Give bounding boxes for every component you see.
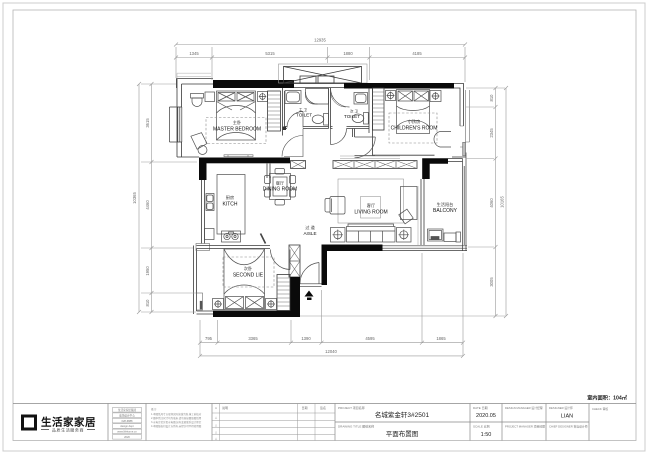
svg-text:客厅: 客厅: [367, 202, 375, 209]
svg-text:LIAN: LIAN: [561, 414, 573, 420]
svg-text:4.本图版权归设计方所有,未经许可不得转用图: 4.本图版权归设计方所有,未经许可不得转用图: [151, 424, 202, 428]
svg-text:TOILET: TOILET: [296, 113, 312, 118]
svg-text:PROJECT 项目名称: PROJECT 项目名称: [338, 405, 365, 410]
svg-text:1:50: 1:50: [481, 432, 492, 438]
svg-text:室内面积：104㎡: 室内面积：104㎡: [587, 394, 628, 402]
svg-text:10165: 10165: [500, 196, 505, 208]
svg-text:1950: 1950: [145, 266, 150, 276]
svg-text:DRAWING TITLE 图纸名称: DRAWING TITLE 图纸名称: [338, 424, 374, 429]
svg-text:1390: 1390: [301, 336, 311, 341]
svg-text:SECOND LIE: SECOND LIE: [233, 273, 264, 279]
svg-text:10365: 10365: [132, 192, 137, 204]
svg-text:日期: 日期: [301, 405, 307, 410]
svg-text:MASTER BEDROOM: MASTER BEDROOM: [213, 127, 261, 133]
svg-text:1345: 1345: [189, 51, 199, 56]
svg-text:PROJECT MANAGER 项目经理: PROJECT MANAGER 项目经理: [505, 425, 545, 429]
svg-text:5315: 5315: [265, 51, 275, 56]
svg-text:名城紫金轩3#2501: 名城紫金轩3#2501: [375, 410, 430, 419]
svg-text:备注:: 备注:: [151, 407, 157, 411]
svg-text:12935: 12935: [314, 38, 326, 43]
svg-text:3615: 3615: [145, 118, 150, 128]
svg-text:design dept: design dept: [120, 424, 134, 428]
svg-text:LIVING ROOM: LIVING ROOM: [354, 210, 387, 216]
svg-text:说明: 说明: [222, 405, 228, 410]
svg-text:028-6888: 028-6888: [122, 419, 134, 423]
svg-text:DESIGNER 设计师: DESIGNER 设计师: [549, 406, 573, 410]
svg-text:795: 795: [205, 336, 213, 341]
svg-text:TOILET: TOILET: [344, 114, 360, 119]
svg-text:3005: 3005: [489, 277, 494, 287]
svg-text:2020.05: 2020.05: [476, 413, 496, 419]
svg-text:3.水电定位详见水电图,如有变更联系设计师定: 3.水电定位详见水电图,如有变更联系设计师定: [151, 420, 202, 424]
svg-text:810: 810: [489, 94, 494, 102]
svg-text:AISLE: AISLE: [303, 231, 316, 236]
svg-text:1.本图纸尺寸以现场实际放线为准,施工前核对: 1.本图纸尺寸以现场实际放线为准,施工前核对: [151, 412, 202, 416]
svg-text:平面布置图: 平面布置图: [386, 429, 419, 438]
svg-text:BALCONY: BALCONY: [433, 208, 458, 214]
svg-text:∧: ∧: [215, 406, 217, 410]
svg-text:4185: 4185: [412, 51, 422, 56]
svg-text:KITCH: KITCH: [223, 202, 238, 208]
svg-text:2020: 2020: [124, 435, 130, 439]
svg-text:2.图中所注尺寸均为毫米,请勿直接量取图纸用: 2.图中所注尺寸均为毫米,请勿直接量取图纸用: [151, 416, 202, 420]
svg-text:主卧: 主卧: [233, 119, 241, 126]
svg-text:DATE 日期: DATE 日期: [473, 405, 488, 410]
svg-text:餐厅: 餐厅: [276, 180, 284, 187]
svg-text:CHECK 审核: CHECK 审核: [592, 407, 608, 411]
svg-text:www.lifehome.cn: www.lifehome.cn: [117, 430, 137, 434]
svg-text:签名: 签名: [320, 405, 326, 410]
svg-text:DINING ROOM: DINING ROOM: [263, 187, 297, 193]
svg-text:810: 810: [145, 299, 150, 307]
svg-text:CHILDREN'S ROOM: CHILDREN'S ROOM: [391, 126, 438, 132]
svg-text:次卧: 次卧: [244, 265, 252, 272]
svg-text:生活阳台: 生活阳台: [437, 201, 454, 208]
svg-text:12040: 12040: [325, 349, 337, 354]
svg-text:主 卫: 主 卫: [299, 107, 308, 112]
svg-text:3365: 3365: [248, 336, 258, 341]
svg-text:CHIEF DESIGNER 首席设计师: CHIEF DESIGNER 首席设计师: [549, 425, 588, 429]
svg-text:SCALE 比例: SCALE 比例: [473, 424, 490, 429]
svg-text:4595: 4595: [365, 336, 375, 341]
svg-text:2345: 2345: [489, 128, 494, 138]
svg-text:1880: 1880: [343, 51, 353, 56]
svg-text:过 道: 过 道: [305, 224, 315, 231]
svg-text:次 卫: 次 卫: [350, 109, 359, 114]
svg-text:厨房: 厨房: [226, 194, 234, 201]
svg-text:4060: 4060: [489, 198, 494, 208]
svg-text:4460: 4460: [145, 200, 150, 210]
svg-text:装饰设计中心: 装饰设计中心: [119, 413, 135, 417]
svg-text:小孩房: 小孩房: [408, 118, 421, 125]
svg-text:1865: 1865: [436, 336, 446, 341]
svg-text:品质生活服务商: 品质生活服务商: [52, 427, 84, 433]
svg-text:生活家家居集团: 生活家家居集团: [118, 408, 137, 412]
svg-text:DESIGN MANAGER 设计经理: DESIGN MANAGER 设计经理: [505, 406, 543, 410]
